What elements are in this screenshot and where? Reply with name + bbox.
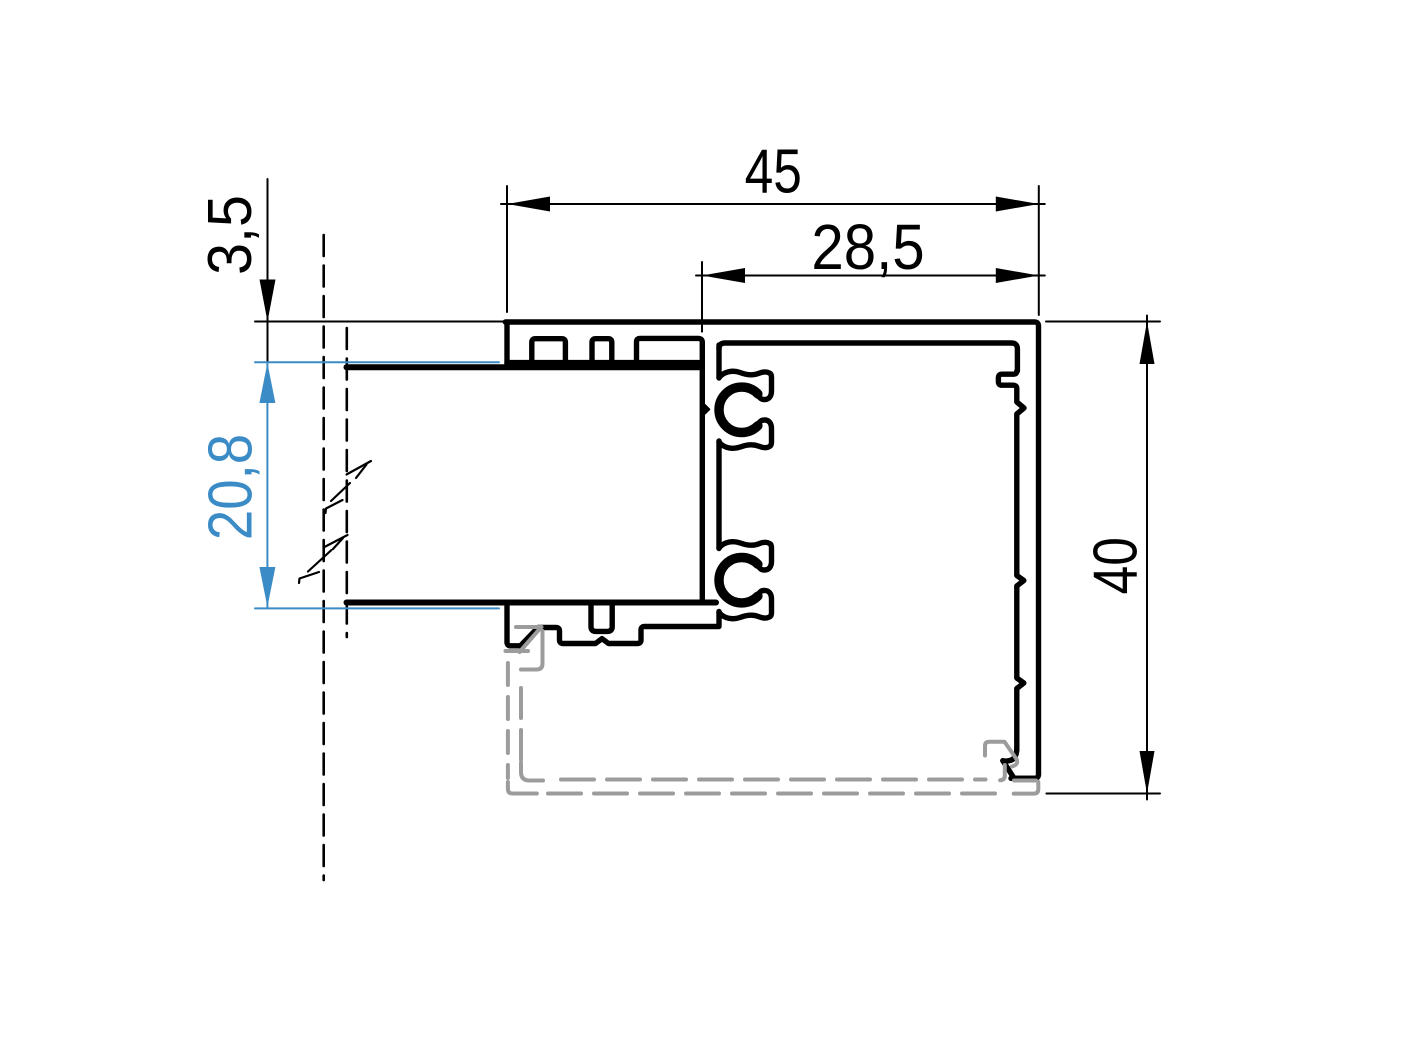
svg-text:40: 40 [1081, 537, 1151, 594]
svg-text:3,5: 3,5 [195, 195, 265, 275]
svg-text:28,5: 28,5 [811, 211, 924, 282]
svg-text:20,8: 20,8 [196, 434, 265, 540]
svg-text:45: 45 [745, 137, 802, 207]
